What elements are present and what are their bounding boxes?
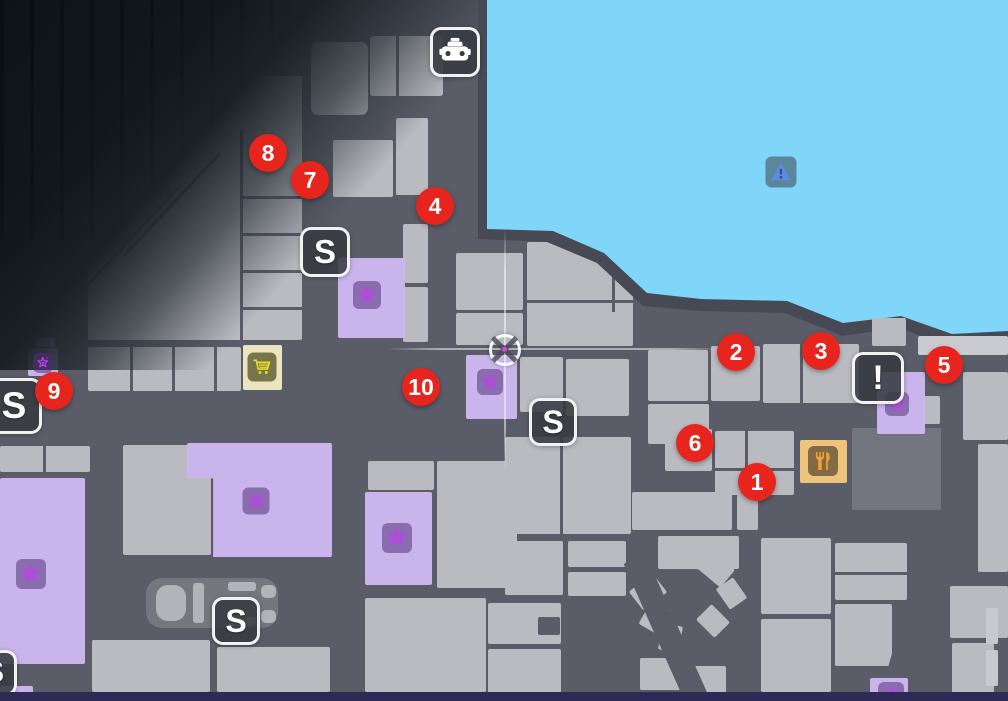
marker-number: 6: [689, 430, 702, 457]
building: [950, 586, 1008, 638]
badge-glyph: S: [225, 603, 246, 640]
alert-badge-icon[interactable]: !: [852, 352, 904, 404]
map-marker-10[interactable]: 10: [402, 368, 440, 406]
building: [632, 492, 732, 530]
map-marker-2[interactable]: 2: [717, 333, 755, 371]
building: [761, 619, 831, 692]
marker-number: 8: [262, 140, 275, 167]
building: [505, 541, 563, 595]
badge-glyph: !: [872, 359, 883, 398]
building: [505, 437, 631, 534]
waypoint-dot: [502, 347, 507, 352]
map-marker-7[interactable]: 7: [291, 161, 329, 199]
unexplored-fog-streaks: [0, 0, 330, 240]
s-badge-icon[interactable]: S: [300, 227, 350, 277]
star-icon: [382, 523, 412, 553]
marker-number: 7: [304, 167, 317, 194]
parcel-line: [43, 446, 46, 472]
parked-car-icon: [228, 582, 256, 591]
s-badge-icon[interactable]: S: [529, 398, 577, 446]
map-marker-8[interactable]: 8: [249, 134, 287, 172]
marker-number: 2: [730, 339, 743, 366]
star-icon: [353, 281, 381, 309]
water-warning-icon[interactable]: [766, 157, 797, 188]
restaurant-icon[interactable]: [808, 446, 838, 476]
pier: [872, 318, 906, 346]
building: [696, 604, 730, 638]
taxi-icon[interactable]: [430, 27, 480, 77]
building: [963, 372, 1008, 440]
badge-glyph: S: [2, 385, 27, 427]
parked-car-icon: [156, 585, 186, 621]
building: [92, 640, 210, 692]
map-marker-4[interactable]: 4: [416, 187, 454, 225]
building: [978, 444, 1008, 572]
parked-car-icon: [261, 610, 276, 623]
star-icon: [477, 369, 503, 395]
badge-glyph: S: [0, 656, 4, 690]
star-icon: [243, 488, 270, 515]
parcel-line: [560, 437, 563, 534]
marker-number: 3: [815, 338, 828, 365]
building: [365, 598, 486, 692]
badge-glyph: S: [542, 404, 563, 441]
courtyard: [538, 617, 560, 635]
game-map[interactable]: SSSSS!12345678910: [0, 0, 1008, 701]
parked-car-icon: [261, 585, 276, 598]
marker-number: 10: [408, 374, 434, 401]
map-marker-3[interactable]: 3: [802, 332, 840, 370]
building: [986, 650, 998, 686]
s-badge-icon[interactable]: S: [212, 597, 260, 645]
map-marker-5[interactable]: 5: [925, 346, 963, 384]
building: [852, 428, 941, 510]
parcel-line: [835, 572, 907, 575]
building: [568, 541, 626, 567]
parcel-line: [527, 300, 633, 303]
building: [835, 604, 892, 666]
s-badge-icon[interactable]: S: [0, 650, 17, 696]
waypoint-hline: [388, 348, 722, 350]
map-marker-9[interactable]: 9: [35, 372, 73, 410]
building: [568, 572, 626, 596]
map-marker-1[interactable]: 1: [738, 463, 776, 501]
building: [368, 461, 434, 490]
parked-car-icon: [193, 583, 204, 623]
building: [217, 647, 330, 692]
building: [986, 608, 998, 644]
marker-number: 5: [938, 352, 951, 379]
shop-cart-icon[interactable]: [248, 353, 277, 382]
star-icon: [16, 559, 46, 589]
map-edge-strip: [0, 692, 1008, 701]
badge-glyph: S: [314, 233, 336, 271]
map-marker-6[interactable]: 6: [676, 424, 714, 462]
building: [488, 649, 561, 693]
waypoint-crosshair-icon[interactable]: [489, 334, 521, 366]
building: [648, 350, 708, 401]
marker-number: 4: [429, 193, 442, 220]
building: [761, 538, 831, 614]
marker-number: 1: [751, 469, 764, 496]
star-icon: [33, 353, 53, 373]
marker-number: 9: [48, 378, 61, 405]
